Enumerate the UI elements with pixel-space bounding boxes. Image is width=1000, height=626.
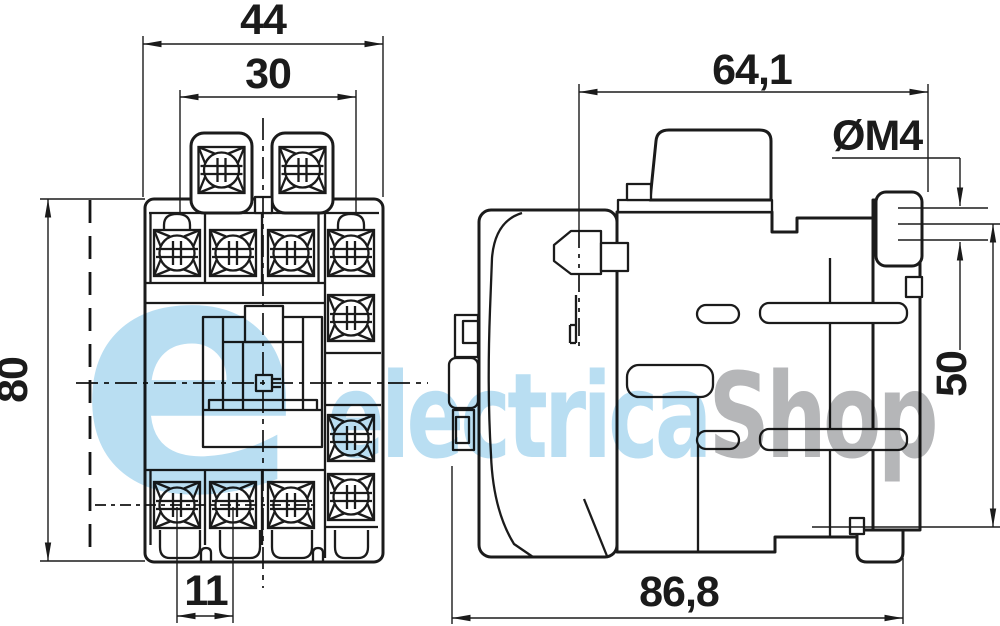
drawing-canvas: 44 30 80 11 64,1 86,8 [0, 0, 1000, 626]
contactor-dimensional-drawing: 44 30 80 11 64,1 86,8 [0, 0, 1000, 626]
dimension-label: 80 [0, 357, 37, 403]
watermark-brand: electricaShop [327, 349, 935, 486]
screw-icon [328, 295, 374, 341]
watermark-brand-secondary: Shop [709, 349, 935, 486]
screw-icon [328, 230, 374, 276]
dimension-label: 86,8 [639, 568, 719, 616]
dimension-label: ØM4 [832, 112, 923, 160]
coil-terminal-side [650, 130, 771, 200]
dimension-label: 50 [928, 351, 976, 397]
dimension-label: 11 [184, 567, 228, 615]
watermark-logo-e: e [78, 184, 302, 568]
dimension-label: 30 [245, 50, 291, 98]
dimension-label: 44 [240, 0, 287, 44]
mounting-flange-top [876, 192, 922, 266]
watermark-brand-primary: electrica [327, 349, 709, 486]
mounting-slot [697, 305, 739, 323]
dimension-label: 64,1 [712, 46, 792, 94]
mounting-slot [760, 303, 907, 323]
